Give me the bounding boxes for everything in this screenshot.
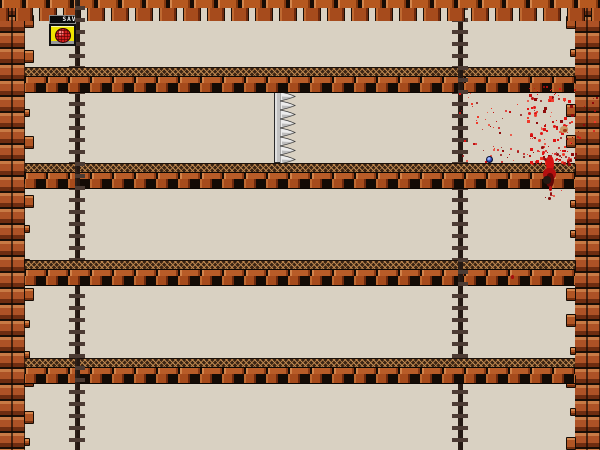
blood-speck [567, 132, 568, 133]
blood-speck [464, 140, 466, 142]
blood-speck [549, 100, 551, 102]
blood-speck [572, 137, 573, 138]
blood-speck [527, 108, 529, 110]
blood-speck [541, 158, 543, 160]
column-front-patch [75, 0, 143, 22]
blood-speck [546, 86, 548, 88]
blood-speck [532, 138, 533, 139]
column-rivet-dashes [75, 358, 85, 385]
blood-speck [505, 110, 507, 112]
metal-column-pair [75, 0, 143, 22]
brick-wall-pot [24, 109, 30, 117]
blood-speck [555, 93, 556, 94]
blood-speck [534, 137, 536, 139]
spike-teeth-icon [280, 92, 298, 164]
blood-pool [548, 197, 551, 200]
column-rivet-dashes [458, 260, 468, 287]
blood-speck [527, 154, 528, 155]
brick-wall-pot [570, 49, 576, 57]
blood-speck [534, 98, 537, 101]
blood-speck [491, 108, 492, 109]
blood-speck [496, 121, 497, 122]
blood-speck [558, 98, 560, 100]
blood-speck [501, 147, 502, 148]
blood-speck [594, 110, 596, 112]
blood-speck [493, 127, 494, 128]
blood-speck [544, 107, 547, 110]
blood-speck [523, 156, 525, 158]
blood-speck [543, 151, 544, 152]
metal-column [458, 260, 463, 287]
blood-speck [544, 139, 545, 140]
blood-speck [510, 148, 512, 150]
blood-speck [553, 139, 556, 142]
save-orb-icon [55, 28, 71, 43]
brick-wall-pot [566, 437, 576, 450]
blood-speck [485, 119, 486, 120]
blood-speck [556, 126, 558, 128]
blood-speck [493, 149, 495, 151]
blood-speck [560, 137, 562, 139]
brick-wall-pot [24, 438, 30, 446]
blood-speck [536, 122, 538, 124]
metal-column-pair [75, 358, 143, 385]
blood-speck [593, 130, 595, 132]
blood-speck [529, 155, 531, 157]
metal-column-pair [75, 163, 143, 190]
brick-wall-pot [24, 50, 34, 63]
blood-speck [544, 125, 546, 127]
blood-speck [509, 111, 511, 113]
blood-speck [550, 90, 551, 91]
blood-speck [462, 155, 464, 157]
brick-wall-pot [24, 136, 34, 149]
metal-column-pair [458, 260, 526, 287]
blood-speck [558, 95, 559, 96]
blood-speck [577, 136, 579, 138]
blood-speck [509, 154, 510, 155]
blood-speck [552, 153, 553, 154]
brick-wall-pot [570, 347, 576, 355]
blood-speck [530, 148, 533, 151]
blood-speck [560, 150, 561, 151]
blood-pool [563, 129, 567, 132]
blood-speck [490, 126, 491, 127]
blood-speck [571, 153, 574, 156]
blood-speck [554, 94, 555, 95]
blood-speck [459, 93, 461, 95]
blood-speck [570, 105, 573, 108]
blood-speck [527, 117, 529, 119]
metal-column [75, 163, 80, 190]
blood-speck [540, 132, 543, 135]
blood-speck [551, 99, 554, 102]
blood-speck [569, 162, 570, 163]
blood-speck [564, 146, 566, 148]
blood-speck [561, 157, 562, 158]
blood-speck [565, 156, 567, 158]
blood-speck [537, 98, 538, 99]
blood-speck [563, 162, 566, 165]
column-front-patch [75, 163, 143, 190]
blood-speck [558, 147, 560, 149]
blood-speck [594, 121, 596, 123]
blood-speck [493, 112, 494, 113]
blood-speck [548, 146, 549, 147]
blood-speck [567, 151, 568, 152]
blood-speck [569, 159, 572, 162]
blood-speck [473, 143, 475, 145]
blood-speck [544, 143, 546, 145]
blood-speck [571, 143, 572, 144]
brick-wall-pot [24, 320, 30, 328]
brick-wall-pot [24, 195, 34, 208]
blood-speck [534, 114, 537, 117]
blood-speck [561, 190, 562, 191]
blood-speck [543, 156, 545, 158]
blood-pool [550, 192, 552, 196]
blood-speck [545, 124, 546, 125]
brick-wall-right [575, 0, 600, 450]
blood-speck [556, 120, 557, 121]
blood-speck [472, 106, 473, 107]
blood-speck [550, 116, 551, 117]
blood-speck [543, 86, 545, 88]
blood-speck [571, 114, 574, 117]
blood-speck [520, 114, 522, 116]
blood-speck [497, 149, 499, 151]
brick-wall-pot [570, 408, 576, 416]
blood-speck [470, 93, 471, 94]
blood-speck [530, 133, 533, 136]
blood-speck [530, 161, 533, 164]
blood-speck [537, 91, 538, 92]
brick-wall-pot [570, 200, 576, 208]
blood-speck [584, 106, 585, 107]
column-rivet-dashes [75, 0, 85, 22]
blood-speck [579, 137, 581, 139]
blood-speck [459, 112, 461, 114]
column-front-patch [458, 67, 526, 94]
blood-speck [555, 159, 557, 161]
blood-speck [564, 101, 565, 102]
column-front-patch [75, 358, 143, 385]
blood-speck [542, 153, 544, 155]
blood-speck [476, 122, 478, 124]
brick-wall-pot [566, 314, 576, 327]
blood-speck [555, 153, 556, 154]
column-rivet-dashes [75, 163, 85, 190]
blood-speck [556, 153, 559, 156]
blood-speck [476, 102, 478, 104]
blood-speck [534, 110, 535, 111]
blood-speck [500, 154, 502, 156]
blood-speck [539, 151, 540, 152]
blood-speck [502, 151, 503, 152]
blood-speck [541, 127, 542, 128]
blood-speck [537, 150, 539, 152]
blood-speck [568, 163, 571, 166]
blood-speck [493, 146, 494, 147]
blood-speck [488, 124, 490, 126]
blood-speck [551, 89, 552, 90]
blood-speck [567, 161, 569, 163]
brick-wall-left [0, 0, 25, 450]
blood-speck [499, 132, 501, 134]
blood-speck [556, 128, 558, 130]
blood-speck [475, 143, 477, 145]
brick-wall-pot [24, 288, 34, 301]
blood-speck [498, 127, 500, 129]
blood-speck [507, 157, 508, 158]
blood-speck [477, 116, 479, 118]
blood-speck [563, 98, 566, 101]
game-viewport[interactable]: SAVE [0, 0, 600, 450]
blood-speck [578, 131, 579, 132]
blood-speck [536, 111, 538, 113]
blood-speck [593, 98, 594, 99]
blood-speck [537, 94, 538, 95]
blood-speck [574, 89, 576, 91]
blood-speck [558, 159, 559, 160]
blood-speck [540, 100, 542, 102]
blood-speck [535, 161, 537, 163]
column-rivet-dashes [458, 67, 468, 94]
blood-speck [517, 104, 518, 105]
blood-speck [575, 153, 577, 155]
blood-speck [487, 112, 488, 113]
blood-speck [513, 160, 514, 161]
blood-speck [547, 152, 548, 153]
metal-column [75, 358, 80, 385]
blood-speck [553, 195, 555, 197]
blood-speck [566, 138, 568, 140]
blood-speck [536, 163, 537, 164]
blood-speck [527, 100, 529, 102]
eyeball-gib [486, 156, 493, 163]
blood-pool [511, 275, 514, 279]
blood-speck [501, 161, 503, 163]
blood-speck [529, 88, 530, 89]
blood-speck [564, 117, 567, 120]
blood-speck [471, 103, 473, 105]
metal-column [75, 0, 80, 22]
blood-pool [549, 186, 552, 191]
blood-speck [592, 102, 594, 104]
blood-speck [527, 120, 530, 123]
blood-speck [596, 97, 598, 99]
column-front-patch [458, 260, 526, 287]
blood-speck [583, 124, 585, 126]
blood-speck [551, 112, 552, 113]
blood-speck [571, 121, 573, 123]
blood-speck [546, 130, 548, 132]
brick-wall-pot [24, 411, 34, 424]
blood-speck [466, 160, 468, 162]
blood-speck [543, 110, 546, 113]
blood-speck [517, 150, 519, 152]
blood-speck [541, 146, 544, 149]
save-point-sign: SAVE [49, 15, 76, 24]
blood-speck [476, 120, 477, 121]
blood-speck [558, 161, 559, 162]
blood-speck [539, 163, 541, 165]
brick-wall-pot [566, 288, 576, 301]
blood-speck [543, 128, 546, 131]
blood-speck [552, 121, 554, 123]
blood-speck [528, 112, 531, 115]
metal-column [458, 67, 463, 94]
blood-speck [541, 162, 542, 163]
blood-pool [543, 176, 551, 184]
blood-speck [559, 88, 561, 90]
blood-speck [468, 97, 469, 98]
blood-speck [589, 116, 590, 117]
brick-wall-pot [24, 225, 30, 233]
save-point-button[interactable] [49, 24, 76, 46]
blood-speck [575, 157, 576, 158]
blood-speck [510, 134, 512, 136]
blood-speck [533, 152, 534, 153]
blood-speck [568, 100, 571, 103]
blood-speck [502, 118, 503, 119]
blood-speck [482, 129, 483, 130]
blood-speck [530, 138, 531, 139]
blood-speck [523, 153, 525, 155]
blood-speck [483, 150, 484, 151]
blood-speck [557, 139, 559, 141]
brick-wall-pot [570, 230, 576, 238]
blood-speck [560, 120, 563, 123]
blood-speck [549, 96, 552, 99]
blood-speck [567, 125, 568, 126]
blood-speck [538, 139, 541, 142]
blood-speck [564, 150, 566, 152]
blood-speck [461, 110, 462, 111]
blood-speck [589, 109, 590, 110]
blood-speck [534, 88, 535, 89]
blood-speck [545, 197, 546, 198]
blood-speck [533, 107, 534, 108]
metal-column-pair [458, 67, 526, 94]
